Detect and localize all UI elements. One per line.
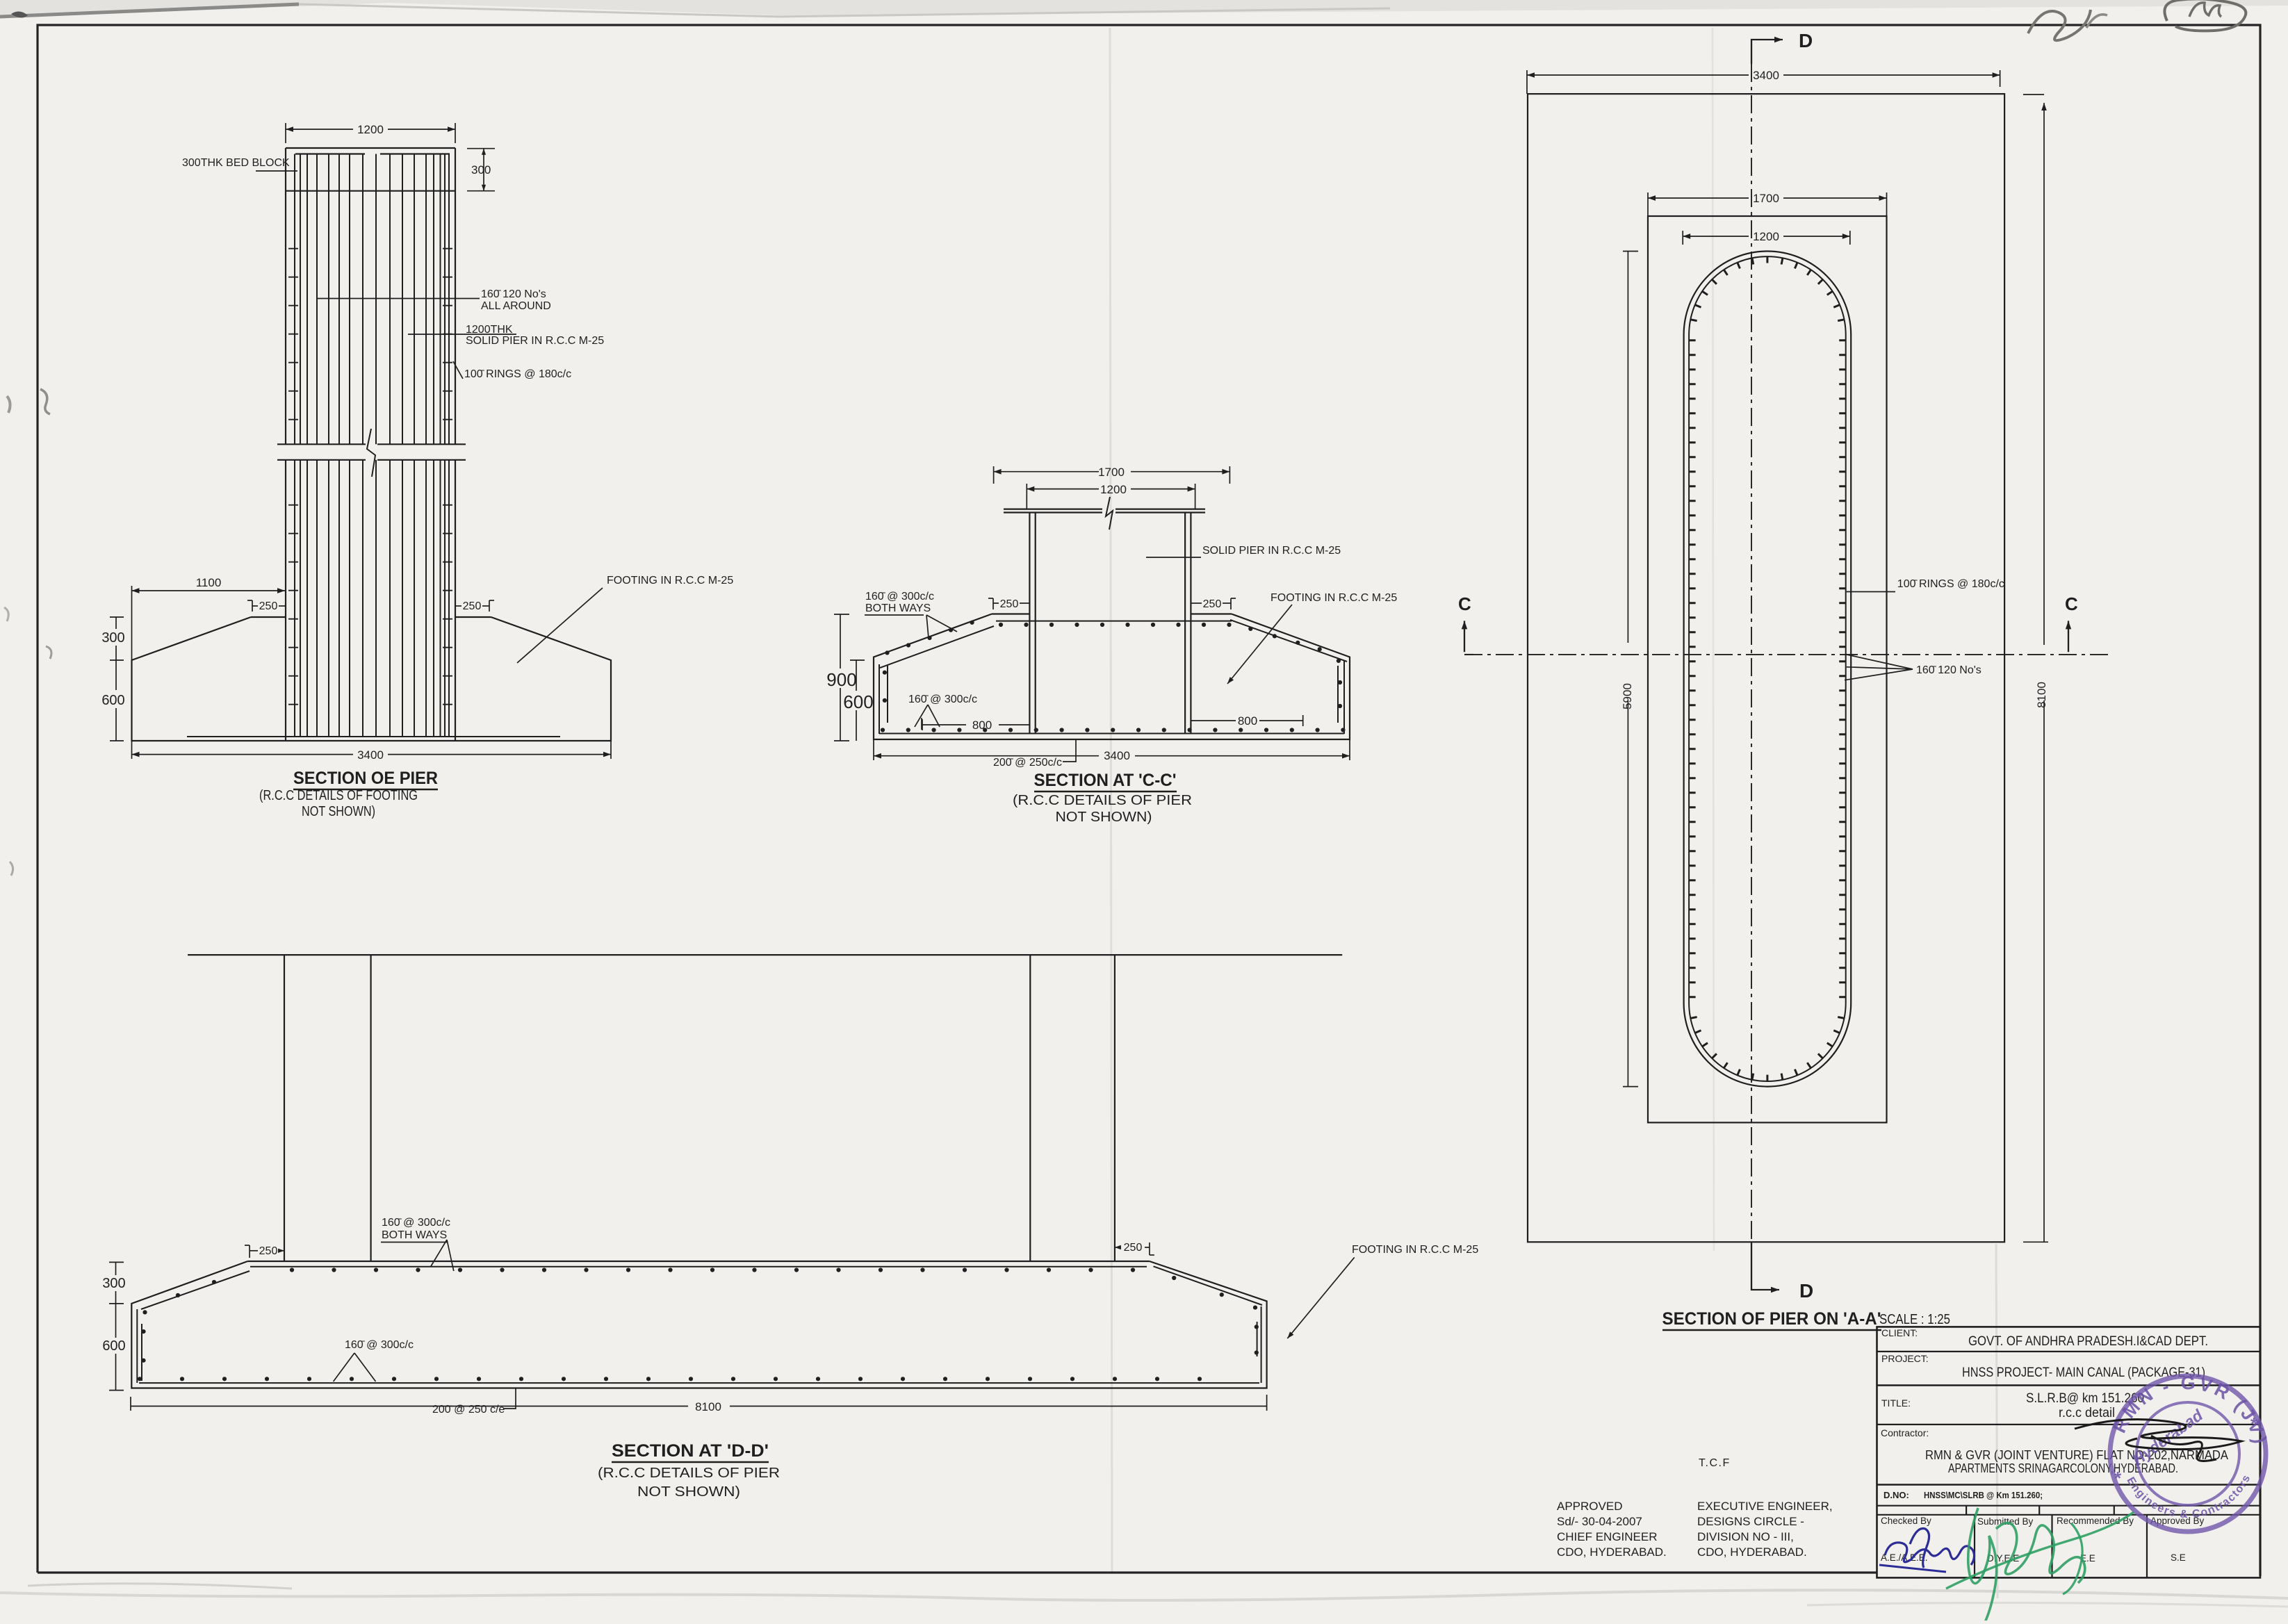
svg-text:3400: 3400 <box>357 748 384 762</box>
svg-text:1200: 1200 <box>357 123 384 136</box>
svg-text:(R.C.C DETAILS OF PIER: (R.C.C DETAILS OF PIER <box>1013 793 1192 808</box>
svg-text:250: 250 <box>259 1245 278 1257</box>
svg-text:C: C <box>1458 593 1471 614</box>
svg-text:600: 600 <box>102 1338 125 1354</box>
svg-text:PROJECT:: PROJECT: <box>1881 1353 1929 1364</box>
svg-text:100̄ RINGS @ 180c/c: 100̄ RINGS @ 180c/c <box>1897 578 2004 590</box>
svg-text:250: 250 <box>1124 1242 1143 1254</box>
svg-text:160̄ @ 300c/c: 160̄ @ 300c/c <box>908 694 977 705</box>
svg-text:*: * <box>2114 1468 2122 1488</box>
svg-text:3400: 3400 <box>1104 749 1130 762</box>
svg-text:Recommended By: Recommended By <box>2057 1516 2134 1526</box>
svg-text:(R.C.C DETAILS OF FOOTING: (R.C.C DETAILS OF FOOTING <box>259 788 418 803</box>
svg-text:DESIGNS CIRCLE -: DESIGNS CIRCLE - <box>1697 1515 1804 1528</box>
svg-text:BOTH WAYS: BOTH WAYS <box>865 602 931 614</box>
svg-text:TITLE:: TITLE: <box>1881 1397 1911 1409</box>
svg-text:CDO, HYDERABAD.: CDO, HYDERABAD. <box>1697 1545 1807 1559</box>
svg-text:NOT SHOWN): NOT SHOWN) <box>1056 810 1152 825</box>
svg-text:200̄ @ 250 c/e: 200̄ @ 250 c/e <box>432 1404 505 1416</box>
svg-text:160̄ @ 300c/c: 160̄ @ 300c/c <box>382 1217 450 1229</box>
svg-text:ALL AROUND: ALL AROUND <box>481 300 551 312</box>
svg-text:250: 250 <box>1203 598 1222 610</box>
svg-text:250: 250 <box>1000 598 1019 610</box>
svg-text:250: 250 <box>463 600 482 612</box>
svg-text:Checked By: Checked By <box>1881 1516 1931 1526</box>
svg-text:NOT SHOWN): NOT SHOWN) <box>637 1484 740 1500</box>
svg-text:SECTION AT 'D-D': SECTION AT 'D-D' <box>612 1441 769 1461</box>
svg-text:600: 600 <box>101 693 124 708</box>
svg-text:Contractor:: Contractor: <box>1881 1427 1929 1438</box>
svg-text:Submitted By: Submitted By <box>1977 1516 2034 1527</box>
svg-text:SOLID PIER IN R.C.C M-25: SOLID PIER IN R.C.C M-25 <box>1202 545 1341 557</box>
svg-text:CDO, HYDERABAD.: CDO, HYDERABAD. <box>1557 1545 1667 1559</box>
svg-text:D: D <box>1799 30 1813 51</box>
svg-text:r.c.c detail: r.c.c detail <box>2059 1406 2115 1420</box>
svg-text:CHIEF ENGINEER: CHIEF ENGINEER <box>1557 1530 1658 1543</box>
svg-text:S.E: S.E <box>2171 1552 2186 1563</box>
svg-text:FOOTING IN R.C.C M-25: FOOTING IN R.C.C M-25 <box>607 575 733 587</box>
svg-text:BOTH WAYS: BOTH WAYS <box>382 1229 447 1241</box>
svg-text:800: 800 <box>1238 714 1257 728</box>
svg-text:160̄ 120 No's: 160̄ 120 No's <box>481 288 546 300</box>
svg-text:800: 800 <box>972 719 992 732</box>
svg-text:FOOTING IN R.C.C M-25: FOOTING IN R.C.C M-25 <box>1270 592 1397 604</box>
svg-text:5900: 5900 <box>1621 683 1634 710</box>
svg-text:160̄ @ 300c/c: 160̄ @ 300c/c <box>865 591 934 602</box>
svg-text:D.NO:: D.NO: <box>1883 1490 1909 1500</box>
svg-text:SECTION AT 'C-C': SECTION AT 'C-C' <box>1034 771 1177 790</box>
svg-text:900: 900 <box>826 669 856 690</box>
svg-text:1700: 1700 <box>1098 466 1125 479</box>
svg-text:8100: 8100 <box>695 1400 721 1413</box>
svg-text:1200: 1200 <box>1753 230 1779 243</box>
svg-text:1200: 1200 <box>1100 483 1127 496</box>
svg-text:160̄ @ 300c/c: 160̄ @ 300c/c <box>345 1339 414 1351</box>
svg-text:160̄ 120 No's: 160̄ 120 No's <box>1916 664 1981 676</box>
svg-text:HNSS\MC\SLRB @ Km 151.260;: HNSS\MC\SLRB @ Km 151.260; <box>1924 1490 2043 1500</box>
svg-text:1700: 1700 <box>1753 192 1779 205</box>
svg-text:T.C.F: T.C.F <box>1699 1457 1731 1469</box>
svg-text:*: * <box>2250 1413 2258 1434</box>
svg-text:1100: 1100 <box>196 576 222 589</box>
svg-text:SECTION OF PIER ON 'A-A': SECTION OF PIER ON 'A-A' <box>1662 1309 1881 1329</box>
svg-text:Sd/- 30-04-2007: Sd/- 30-04-2007 <box>1557 1515 1642 1528</box>
svg-text:SCALE : 1:25: SCALE : 1:25 <box>1879 1312 1950 1327</box>
svg-text:300THK BED BLOCK: 300THK BED BLOCK <box>182 157 290 169</box>
svg-text:GOVT. OF ANDHRA PRADESH.I&CAD: GOVT. OF ANDHRA PRADESH.I&CAD DEPT. <box>1968 1334 2208 1349</box>
svg-text:C: C <box>2065 593 2078 614</box>
svg-text:300: 300 <box>101 630 124 646</box>
svg-text:3400: 3400 <box>1753 69 1779 82</box>
svg-text:100̄ RINGS @ 180c/c: 100̄ RINGS @ 180c/c <box>464 368 571 380</box>
svg-text:DIVISION NO - III,: DIVISION NO - III, <box>1697 1530 1794 1543</box>
svg-text:600: 600 <box>843 691 873 712</box>
svg-text:SECTION OE PIER: SECTION OE PIER <box>293 769 438 788</box>
svg-text:EXECUTIVE ENGINEER,: EXECUTIVE ENGINEER, <box>1697 1500 1833 1513</box>
svg-text:CLIENT:: CLIENT: <box>1881 1327 1918 1338</box>
svg-text:300: 300 <box>102 1276 125 1291</box>
svg-text:D: D <box>1799 1280 1813 1302</box>
svg-text:NOT SHOWN): NOT SHOWN) <box>302 804 375 819</box>
svg-text:SOLID PIER IN R.C.C M-25: SOLID PIER IN R.C.C M-25 <box>466 335 604 347</box>
svg-text:250: 250 <box>259 600 278 612</box>
svg-text:APPROVED: APPROVED <box>1557 1500 1622 1513</box>
svg-text:300: 300 <box>471 163 491 177</box>
svg-text:8100: 8100 <box>2035 682 2048 708</box>
svg-text:200̄ @ 250c/c: 200̄ @ 250c/c <box>993 757 1062 769</box>
svg-text:(R.C.C DETAILS OF PIER: (R.C.C DETAILS OF PIER <box>598 1466 780 1481</box>
svg-text:FOOTING IN R.C.C M-25: FOOTING IN R.C.C M-25 <box>1352 1244 1478 1256</box>
